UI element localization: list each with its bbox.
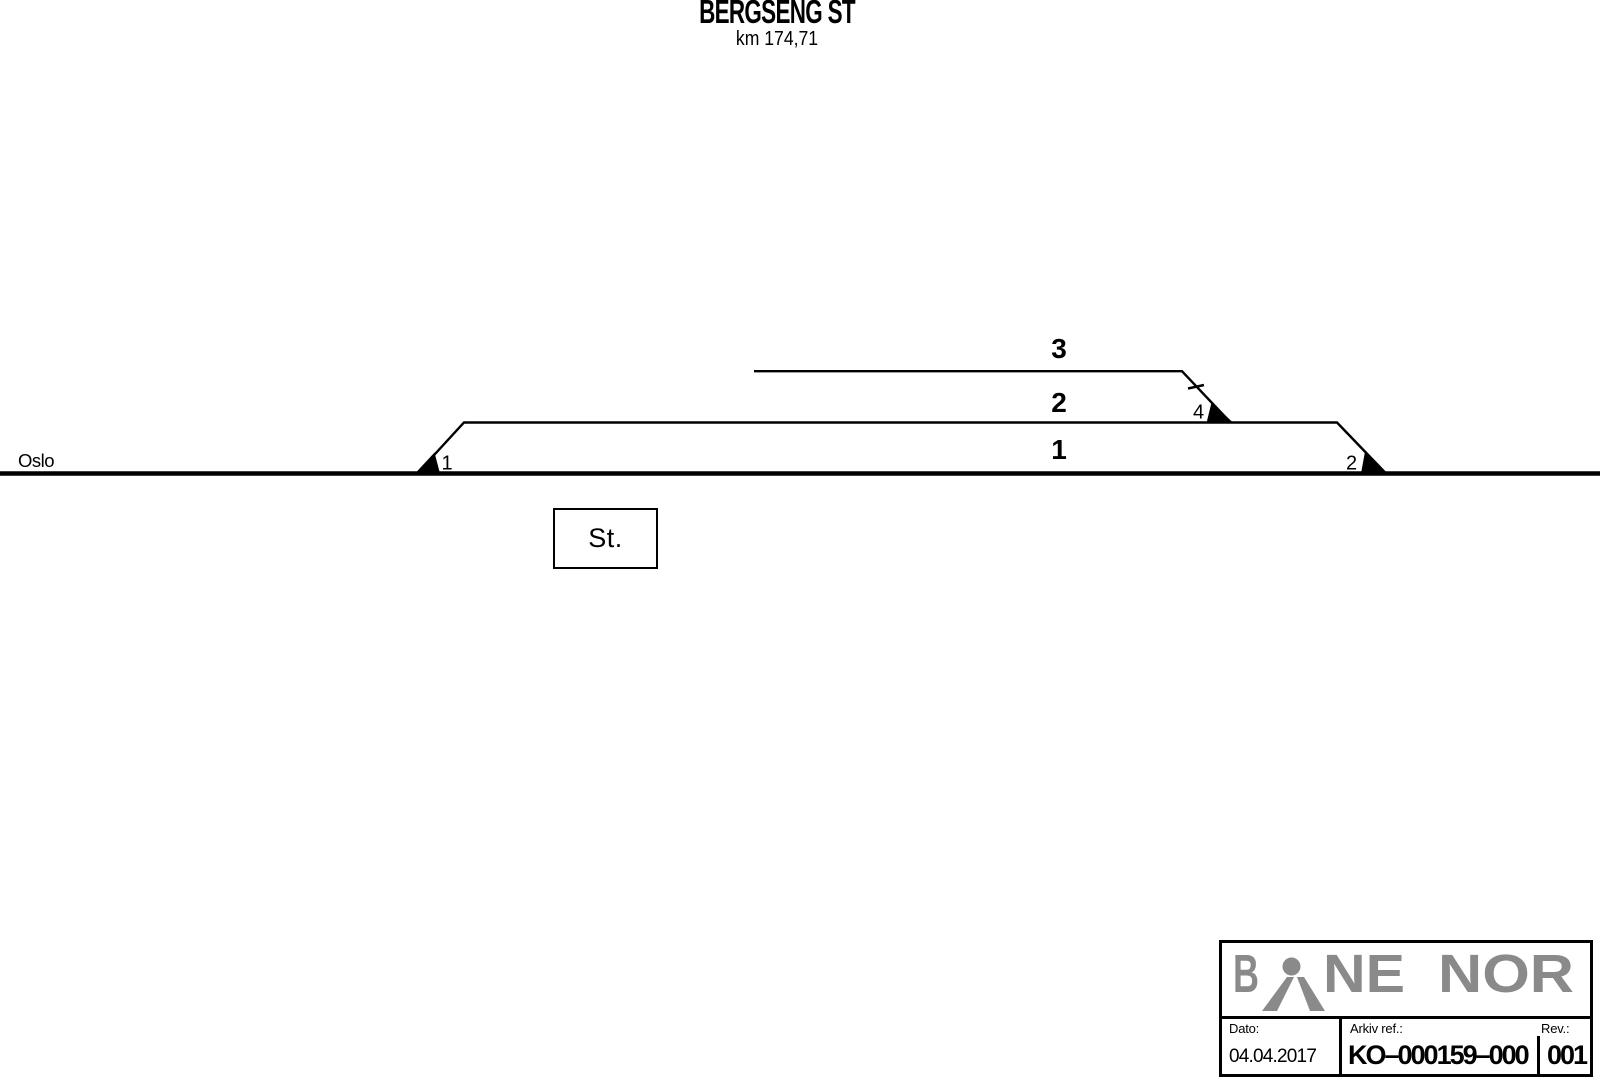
arkiv-rev-cell: Arkiv ref.: Rev.: KO–000159–000 001: [1342, 1019, 1590, 1074]
dato-cell: Dato: 04.04.2017: [1222, 1019, 1342, 1074]
arkiv-ref-value: KO–000159–000: [1342, 1036, 1540, 1074]
track-3-label: 3: [1051, 333, 1067, 364]
logo-letter-b: B: [1233, 953, 1259, 1004]
switch-4-label: 4: [1193, 402, 1204, 424]
switch-1-label: 1: [442, 453, 453, 475]
dato-value: 04.04.2017: [1229, 1046, 1316, 1068]
switch-2-label: 2: [1346, 453, 1357, 475]
track-2-label: 2: [1051, 387, 1067, 418]
arkiv-rev-values: KO–000159–000 001: [1342, 1036, 1590, 1074]
title-block-fields: Dato: 04.04.2017 Arkiv ref.: Rev.: KO–00…: [1222, 1019, 1590, 1074]
switch-1-marker: [415, 453, 440, 474]
station-box-label: St.: [588, 523, 623, 554]
direction-label-oslo: Oslo: [18, 450, 54, 471]
rev-value: 001: [1540, 1036, 1590, 1074]
track-diagram: Oslo 3 2 1 1 2 4: [0, 0, 1600, 1080]
bane-nor-logo: B NE NOR: [1222, 943, 1590, 1019]
rev-label: Rev.:: [1541, 1021, 1569, 1036]
station-box: St.: [553, 508, 658, 569]
logo-a-left-leg: [1262, 977, 1294, 1011]
logo-letters-ne: NE: [1323, 953, 1405, 1004]
logo-a-mark: [1262, 958, 1325, 1012]
joint-tick-mark: [1188, 385, 1204, 389]
logo-a-right-leg: [1297, 977, 1325, 1011]
track-3-siding-line: [754, 371, 1231, 422]
title-block: B NE NOR Dato: 04.04.2017 Arkiv ref.: Re…: [1219, 940, 1593, 1077]
bane-nor-logo-svg: B NE NOR: [1233, 953, 1578, 1013]
logo-letters-nor: NOR: [1438, 953, 1574, 1004]
switch-4-marker: [1207, 403, 1234, 424]
switch-2-marker: [1361, 452, 1387, 474]
track-2-loop-line: [419, 423, 1387, 474]
dato-label: Dato:: [1229, 1021, 1259, 1036]
arkiv-ref-label: Arkiv ref.:: [1350, 1021, 1403, 1036]
logo-a-dome: [1283, 958, 1301, 976]
track-1-label: 1: [1051, 434, 1067, 465]
